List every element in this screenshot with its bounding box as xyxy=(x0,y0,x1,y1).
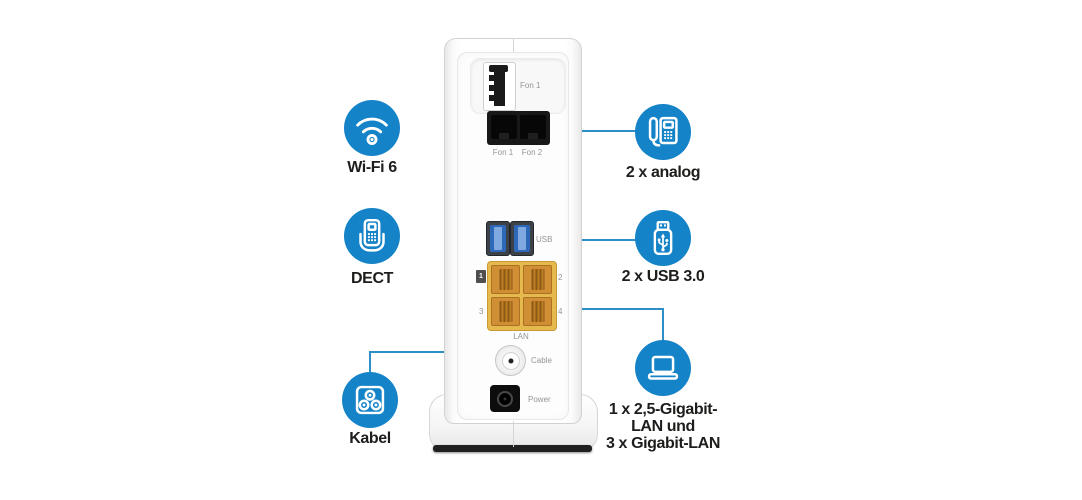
usb-stick-icon xyxy=(635,210,691,266)
feature-label-dect: DECT xyxy=(302,270,442,287)
lan-port-4 xyxy=(523,297,552,326)
rj11-fon1-label: Fon 1 xyxy=(489,148,517,157)
lan-ports-label: LAN xyxy=(505,332,537,341)
desk-phone-icon-glyph xyxy=(640,109,686,155)
dect-phone-icon-glyph xyxy=(349,213,395,259)
lan-port-2-number: 2 xyxy=(558,273,562,282)
wifi-icon xyxy=(344,100,400,156)
power-connector-label: Power xyxy=(528,395,551,404)
lan-port-pins xyxy=(531,301,544,322)
router-feature-diagram: Wi-Fi 6 DECT xyxy=(0,0,1082,500)
router-bottom-seam xyxy=(513,421,514,447)
feature-label-wifi6: Wi-Fi 6 xyxy=(302,159,442,176)
desk-phone-icon xyxy=(635,104,691,160)
cable-socket-icon-glyph xyxy=(347,377,393,423)
rj11-tab xyxy=(499,133,509,139)
tae-port-label: Fon 1 xyxy=(520,81,540,90)
rj11-fon2-label: Fon 2 xyxy=(518,148,546,157)
rj11-fon-ports xyxy=(487,111,550,145)
tae-connector-tooth xyxy=(489,95,495,101)
lan-port-1-badge: 1 xyxy=(476,270,486,283)
lan-port-pins xyxy=(499,269,512,290)
lan-port-pins xyxy=(499,301,512,322)
cable-socket-icon xyxy=(342,372,398,428)
gigabit-label-line-1: 1 x 2,5-Gigabit- xyxy=(573,401,753,418)
lan-port-3 xyxy=(491,297,520,326)
wifi-icon-glyph xyxy=(349,105,395,151)
power-connector xyxy=(490,385,520,412)
callout-line-kabel-horizontal xyxy=(369,351,446,353)
callout-line-analog xyxy=(577,130,636,132)
router-top-seam xyxy=(513,39,514,53)
lan-port-2 xyxy=(523,265,552,294)
lan-port-4-number: 4 xyxy=(558,307,562,316)
lan-port-1 xyxy=(491,265,520,294)
usb-port-tongue xyxy=(518,227,526,250)
callout-line-usb xyxy=(577,239,636,241)
rj11-port-fon2 xyxy=(520,115,546,139)
usb-port-1 xyxy=(486,221,510,256)
coax-cable-connector xyxy=(495,345,526,376)
usb-port-2 xyxy=(510,221,534,256)
callout-line-lan-vertical xyxy=(662,308,664,342)
laptop-icon xyxy=(635,340,691,396)
dect-phone-icon xyxy=(344,208,400,264)
usb-stick-icon-glyph xyxy=(640,215,686,261)
usb-ports-label: USB xyxy=(536,235,552,244)
gigabit-label-line-3: 3 x Gigabit-LAN xyxy=(573,435,753,452)
lan-port-3-number: 3 xyxy=(479,307,483,316)
feature-label-gigabit-lan: 1 x 2,5-Gigabit- LAN und 3 x Gigabit-LAN xyxy=(573,401,753,452)
cable-connector-label: Cable xyxy=(531,356,552,365)
lan-port-pins xyxy=(531,269,544,290)
tae-connector-tooth xyxy=(489,85,495,91)
gigabit-label-line-2: LAN und xyxy=(573,418,753,435)
coax-cable-pin xyxy=(508,358,513,363)
feature-label-kabel: Kabel xyxy=(300,430,440,447)
power-connector-ring xyxy=(497,391,513,407)
feature-label-analog: 2 x analog xyxy=(593,164,733,181)
laptop-icon-glyph xyxy=(640,345,686,391)
rj11-tab xyxy=(528,133,538,139)
lan-port-block xyxy=(487,261,557,331)
callout-line-lan-horizontal xyxy=(577,308,664,310)
tae-connector-body xyxy=(494,71,505,106)
power-connector-pin xyxy=(504,397,507,400)
usb-port-tongue xyxy=(494,227,502,250)
rj11-port-fon1 xyxy=(491,115,517,139)
feature-label-usb30: 2 x USB 3.0 xyxy=(593,268,733,285)
tae-connector-tooth xyxy=(489,75,495,81)
